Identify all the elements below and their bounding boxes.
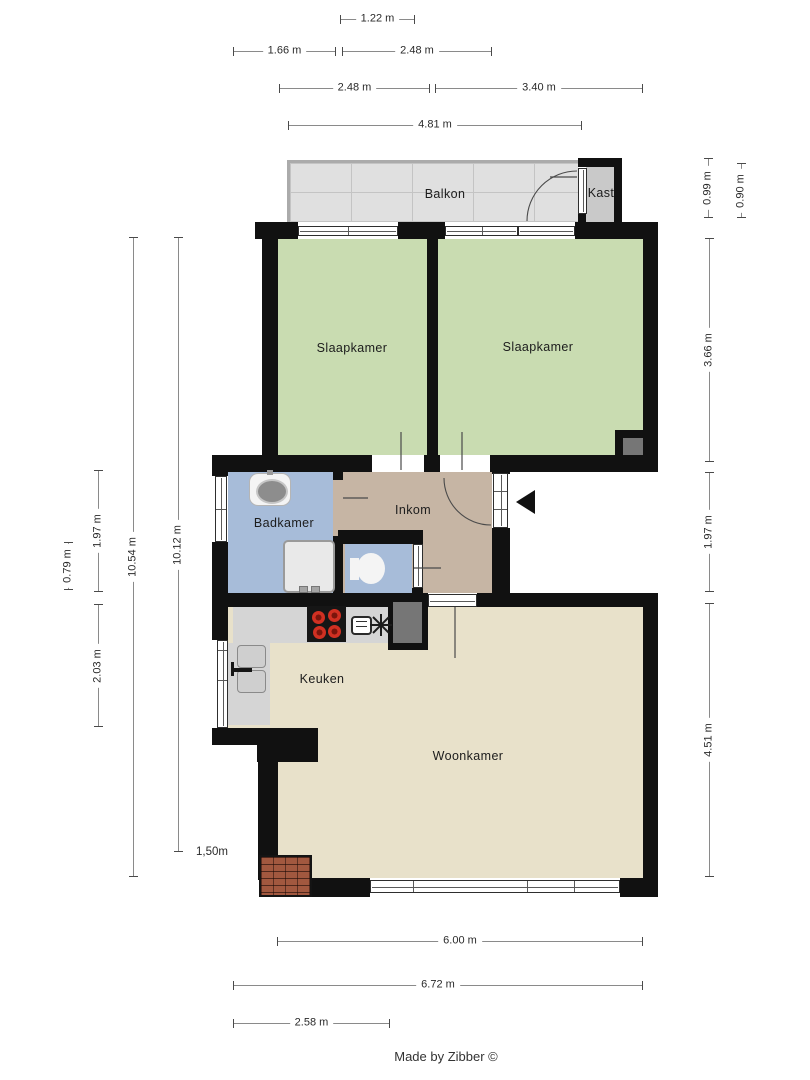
dimension-079m: 0.79 m bbox=[60, 542, 76, 590]
dimension-line bbox=[94, 470, 103, 471]
dimension-line bbox=[704, 158, 713, 159]
doors-and-symbols-overlay bbox=[0, 0, 810, 1080]
dimension-197m: 1.97 m bbox=[701, 472, 717, 592]
dimension-label: 0.90 m bbox=[735, 169, 748, 213]
dimension-line bbox=[705, 876, 714, 877]
dimension-line bbox=[288, 121, 289, 130]
dimension-line bbox=[94, 604, 103, 605]
room-label-woonkamer-7: Woonkamer bbox=[433, 749, 504, 763]
dimension-label: 1.22 m bbox=[356, 13, 400, 26]
dimension-line bbox=[642, 981, 643, 990]
dimension-line bbox=[435, 84, 436, 93]
dimension-line bbox=[737, 163, 746, 164]
dimension-line bbox=[129, 876, 138, 877]
dimension-label: 0.99 m bbox=[702, 166, 715, 210]
dimension-line bbox=[279, 84, 280, 93]
dimension-line bbox=[342, 47, 343, 56]
dimension-203m: 2.03 m bbox=[90, 604, 106, 727]
room-label-slaapkamer-2: Slaapkamer bbox=[317, 341, 388, 355]
dimension-line bbox=[705, 591, 714, 592]
dimension-line bbox=[233, 47, 234, 56]
dimension-258m: 2.58 m bbox=[233, 1015, 390, 1031]
dimension-line bbox=[233, 1019, 234, 1028]
dimension-340m: 3.40 m bbox=[435, 80, 643, 96]
dimension-label: 4.81 m bbox=[413, 119, 457, 132]
room-label-inkom-5: Inkom bbox=[395, 503, 431, 517]
dimension-label: 0.79 m bbox=[62, 544, 75, 588]
dimension-line bbox=[233, 981, 234, 990]
dimension-line bbox=[340, 15, 341, 24]
room-label-balkon-0: Balkon bbox=[425, 187, 466, 201]
dimension-line bbox=[335, 47, 336, 56]
dimension-line bbox=[129, 237, 138, 238]
dimension-122m: 1.22 m bbox=[340, 11, 415, 27]
dimension-label: 1.97 m bbox=[92, 509, 105, 553]
dimension-366m: 3.66 m bbox=[701, 238, 717, 462]
dimension-099m: 0.99 m bbox=[700, 158, 716, 218]
dimension-672m: 6.72 m bbox=[233, 977, 643, 993]
dimension-line bbox=[581, 121, 582, 130]
room-label-slaapkamer-3: Slaapkamer bbox=[503, 340, 574, 354]
dimension-166m: 1.66 m bbox=[233, 43, 336, 59]
dimension-line bbox=[705, 238, 714, 239]
dimension-label: 3.66 m bbox=[703, 328, 716, 372]
dimension-label: 10.12 m bbox=[172, 520, 185, 570]
dimension-label: 2.48 m bbox=[395, 45, 439, 58]
dimension-line bbox=[64, 542, 73, 543]
entrance-arrow-icon bbox=[516, 490, 535, 514]
dimension-line bbox=[642, 937, 643, 946]
dimension-1054m: 10.54 m bbox=[125, 237, 141, 877]
dimension-line bbox=[174, 851, 183, 852]
dimension-1012m: 10.12 m bbox=[170, 237, 186, 852]
dimension-label: 6.72 m bbox=[416, 979, 460, 992]
dimension-label: 10.54 m bbox=[127, 532, 140, 582]
dimension-label: 4.51 m bbox=[703, 718, 716, 762]
room-label-badkamer-4: Badkamer bbox=[254, 516, 314, 530]
dimension-label: 6.00 m bbox=[438, 935, 482, 948]
floorplan: Made by Zibber © BalkonKastSlaapkamerSla… bbox=[0, 0, 810, 1080]
dimension-line bbox=[174, 237, 183, 238]
dimension-090m: 0.90 m bbox=[733, 163, 749, 218]
dimension-label: 1.97 m bbox=[703, 510, 716, 554]
dimension-line bbox=[705, 461, 714, 462]
door-swing-voordeur bbox=[444, 478, 491, 525]
dimension-label: 2.58 m bbox=[290, 1017, 334, 1030]
dimension-line bbox=[704, 217, 713, 218]
dimension-line bbox=[94, 591, 103, 592]
dimension-197m: 1.97 m bbox=[90, 470, 106, 592]
room-label-kast-1: Kast bbox=[588, 186, 615, 200]
dimension-line bbox=[737, 217, 746, 218]
dimension-line bbox=[705, 472, 714, 473]
dimension-line bbox=[414, 15, 415, 24]
room-label-keuken-6: Keuken bbox=[300, 672, 345, 686]
dimension-451m: 4.51 m bbox=[701, 603, 717, 877]
dimension-line bbox=[642, 84, 643, 93]
dimension-line bbox=[491, 47, 492, 56]
dimension-line bbox=[429, 84, 430, 93]
free-label-150m: 1,50m bbox=[196, 846, 228, 858]
dimension-248m: 2.48 m bbox=[279, 80, 430, 96]
dimension-label: 2.48 m bbox=[333, 82, 377, 95]
dimension-label: 2.03 m bbox=[92, 644, 105, 688]
dimension-line bbox=[64, 589, 73, 590]
dimension-label: 1.66 m bbox=[263, 45, 307, 58]
dimension-line bbox=[705, 603, 714, 604]
door-swing-balkon bbox=[527, 171, 577, 221]
dimension-label: 3.40 m bbox=[517, 82, 561, 95]
dimension-line bbox=[277, 937, 278, 946]
dimension-600m: 6.00 m bbox=[277, 933, 643, 949]
dimension-248m: 2.48 m bbox=[342, 43, 492, 59]
dimension-line bbox=[94, 726, 103, 727]
dimension-481m: 4.81 m bbox=[288, 117, 582, 133]
dimension-line bbox=[389, 1019, 390, 1028]
